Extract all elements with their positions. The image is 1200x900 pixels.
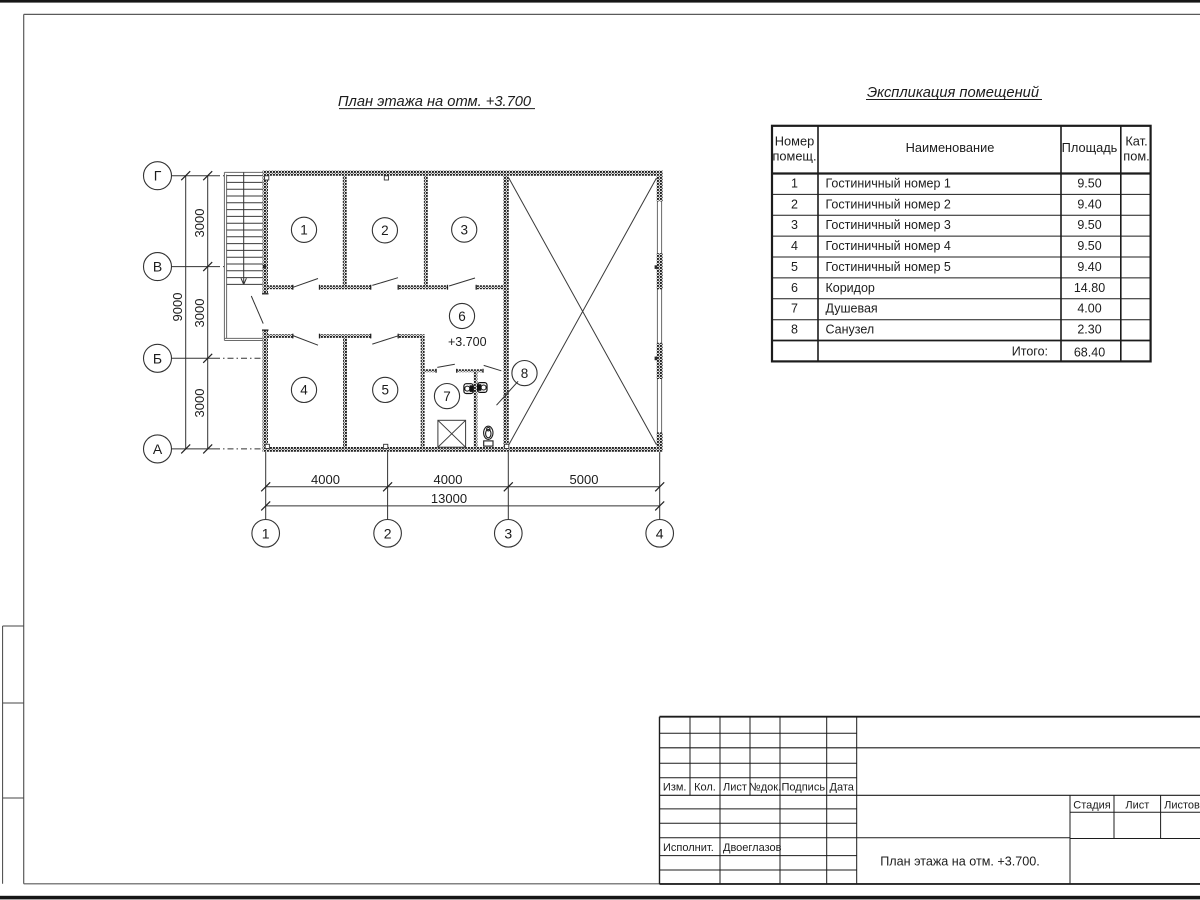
svg-text:помещ.: помещ.	[772, 149, 816, 164]
svg-text:2: 2	[384, 525, 392, 541]
svg-text:4: 4	[656, 525, 664, 541]
svg-text:3000: 3000	[192, 209, 207, 238]
svg-text:8: 8	[521, 366, 529, 381]
svg-text:Кол.: Кол.	[694, 782, 716, 794]
svg-text:Гостиничный номер 4: Гостиничный номер 4	[826, 239, 951, 253]
svg-text:9.50: 9.50	[1077, 239, 1101, 253]
svg-text:Наименование: Наименование	[906, 140, 995, 155]
svg-text:3: 3	[460, 222, 468, 237]
svg-text:9000: 9000	[170, 293, 185, 322]
svg-text:Душевая: Душевая	[826, 302, 878, 316]
svg-text:68.40: 68.40	[1074, 345, 1105, 359]
svg-text:7: 7	[791, 302, 798, 316]
svg-text:Итого:: Итого:	[1012, 344, 1048, 358]
svg-text:9.50: 9.50	[1077, 218, 1101, 232]
svg-text:5000: 5000	[570, 472, 599, 487]
svg-text:1: 1	[791, 176, 798, 190]
svg-text:Листов: Листов	[1164, 800, 1200, 812]
svg-text:Исполнит.: Исполнит.	[663, 842, 714, 854]
svg-text:Экспликация помещений: Экспликация помещений	[867, 85, 1039, 101]
svg-text:Подпись: Подпись	[782, 782, 826, 794]
svg-text:Номер: Номер	[775, 134, 814, 149]
svg-text:Гостиничный номер 5: Гостиничный номер 5	[826, 260, 951, 274]
svg-text:Дата: Дата	[830, 782, 855, 794]
svg-text:Площадь: Площадь	[1062, 140, 1118, 155]
svg-text:3: 3	[504, 525, 512, 541]
svg-text:9.50: 9.50	[1077, 176, 1101, 190]
svg-text:7: 7	[443, 389, 451, 404]
svg-text:9.40: 9.40	[1077, 260, 1101, 274]
svg-text:Лист: Лист	[1125, 800, 1149, 812]
svg-text:Б: Б	[153, 350, 162, 366]
svg-text:5: 5	[381, 383, 389, 398]
svg-text:А: А	[153, 441, 163, 457]
svg-text:Гостиничный номер 1: Гостиничный номер 1	[826, 176, 951, 190]
svg-text:6: 6	[791, 281, 798, 295]
svg-text:3000: 3000	[192, 389, 207, 418]
svg-text:5: 5	[791, 260, 798, 274]
svg-text:4: 4	[791, 239, 798, 253]
svg-text:Кат.: Кат.	[1125, 134, 1147, 149]
svg-text:3: 3	[791, 218, 798, 232]
svg-text:Изм.: Изм.	[663, 782, 687, 794]
svg-text:4000: 4000	[311, 472, 340, 487]
svg-text:Санузел: Санузел	[826, 323, 875, 337]
svg-text:4.00: 4.00	[1077, 302, 1101, 316]
svg-text:2.30: 2.30	[1077, 323, 1101, 337]
svg-text:1: 1	[262, 525, 270, 541]
svg-text:1: 1	[300, 223, 308, 238]
svg-text:2: 2	[381, 223, 389, 238]
svg-text:+3.700: +3.700	[448, 335, 487, 349]
svg-text:13000: 13000	[431, 491, 467, 506]
svg-text:План этажа на отм. +3.700.: План этажа на отм. +3.700.	[880, 855, 1040, 869]
svg-text:План этажа на отм. +3.700: План этажа на отм. +3.700	[338, 94, 532, 110]
svg-text:14.80: 14.80	[1074, 281, 1105, 295]
svg-text:8: 8	[791, 323, 798, 337]
svg-text:6: 6	[458, 309, 466, 324]
svg-text:2: 2	[791, 197, 798, 211]
svg-text:№док.: №док.	[749, 782, 781, 794]
svg-text:4: 4	[300, 383, 308, 398]
svg-text:Стадия: Стадия	[1073, 800, 1111, 812]
svg-text:9.40: 9.40	[1077, 197, 1101, 211]
svg-text:В: В	[153, 259, 162, 275]
svg-text:Лист: Лист	[723, 782, 747, 794]
svg-text:4000: 4000	[434, 472, 463, 487]
svg-text:Гостиничный номер 2: Гостиничный номер 2	[826, 197, 951, 211]
svg-text:Коридор: Коридор	[826, 281, 875, 295]
svg-text:пом.: пом.	[1123, 149, 1149, 164]
svg-text:Г: Г	[154, 168, 162, 184]
svg-text:Гостиничный номер 3: Гостиничный номер 3	[826, 218, 951, 232]
svg-text:Двоеглазов: Двоеглазов	[723, 842, 782, 854]
svg-text:3000: 3000	[192, 299, 207, 328]
